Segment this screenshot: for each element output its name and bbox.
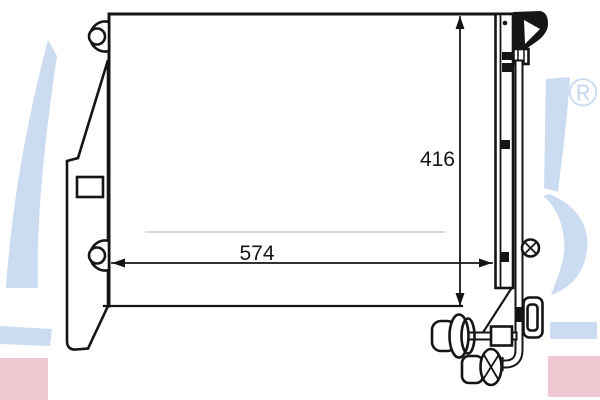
- top-hook-bracket: [513, 11, 548, 64]
- width-arrowhead-right: [479, 259, 492, 268]
- width-arrowhead-left: [112, 259, 125, 268]
- watermark-right-stroke-bowl: [543, 194, 587, 295]
- watermark-left-bar: [0, 326, 52, 346]
- tank-mark-4: [501, 252, 509, 262]
- condenser-drawing-group: 574 416: [67, 11, 548, 385]
- height-arrowhead-top: [456, 16, 465, 29]
- watermark-right-bar: [550, 322, 597, 339]
- registered-trademark: ®: [568, 71, 597, 115]
- watermark-left-pink-block: [0, 358, 48, 400]
- height-arrowhead-bottom: [456, 293, 465, 306]
- side-bracket: [67, 60, 108, 350]
- grommet-top-inner: [89, 29, 105, 45]
- mounting-bolt: [522, 240, 539, 257]
- mounting-grommet-top: [89, 22, 109, 52]
- tank-mark-3: [500, 140, 510, 149]
- service-valve-upper: [432, 315, 475, 358]
- height-dimension-label: 416: [420, 148, 455, 171]
- condenser-technical-drawing: ®: [0, 0, 600, 400]
- pipe-coupler: [491, 327, 512, 346]
- side-bracket-slot: [77, 177, 103, 197]
- grommet-bottom-inner: [89, 248, 105, 264]
- width-dimension-label: 574: [239, 242, 274, 265]
- drawing-canvas: ®: [0, 0, 600, 400]
- width-dimension: 574: [112, 242, 492, 268]
- tank-mark-1: [502, 52, 512, 60]
- watermark-right-stroke-top: [544, 77, 570, 192]
- tank-mark-2: [502, 63, 512, 72]
- tank-mark-dot: [503, 21, 508, 26]
- watermark-left-stroke: [6, 40, 57, 288]
- watermark-right-pink-block: [548, 356, 600, 397]
